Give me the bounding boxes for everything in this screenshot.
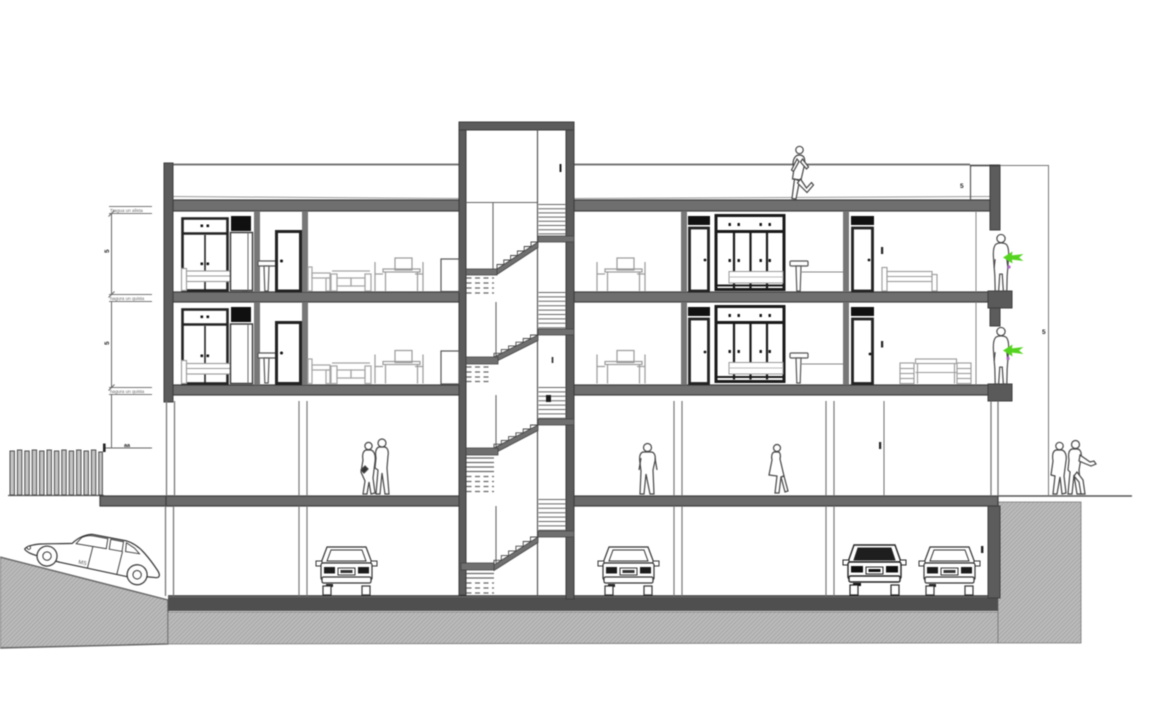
- svg-text:5: 5: [104, 249, 111, 253]
- svg-text:5: 5: [960, 183, 964, 190]
- svg-text:5: 5: [104, 341, 111, 345]
- svg-text:hagura un quista: hagura un quista: [110, 389, 145, 394]
- svg-text:5: 5: [1042, 329, 1046, 336]
- svg-text:aa: aa: [124, 443, 131, 449]
- svg-text:Tragua un alista: Tragua un alista: [110, 208, 143, 213]
- svg-text:hagura un quista: hagura un quista: [110, 296, 145, 301]
